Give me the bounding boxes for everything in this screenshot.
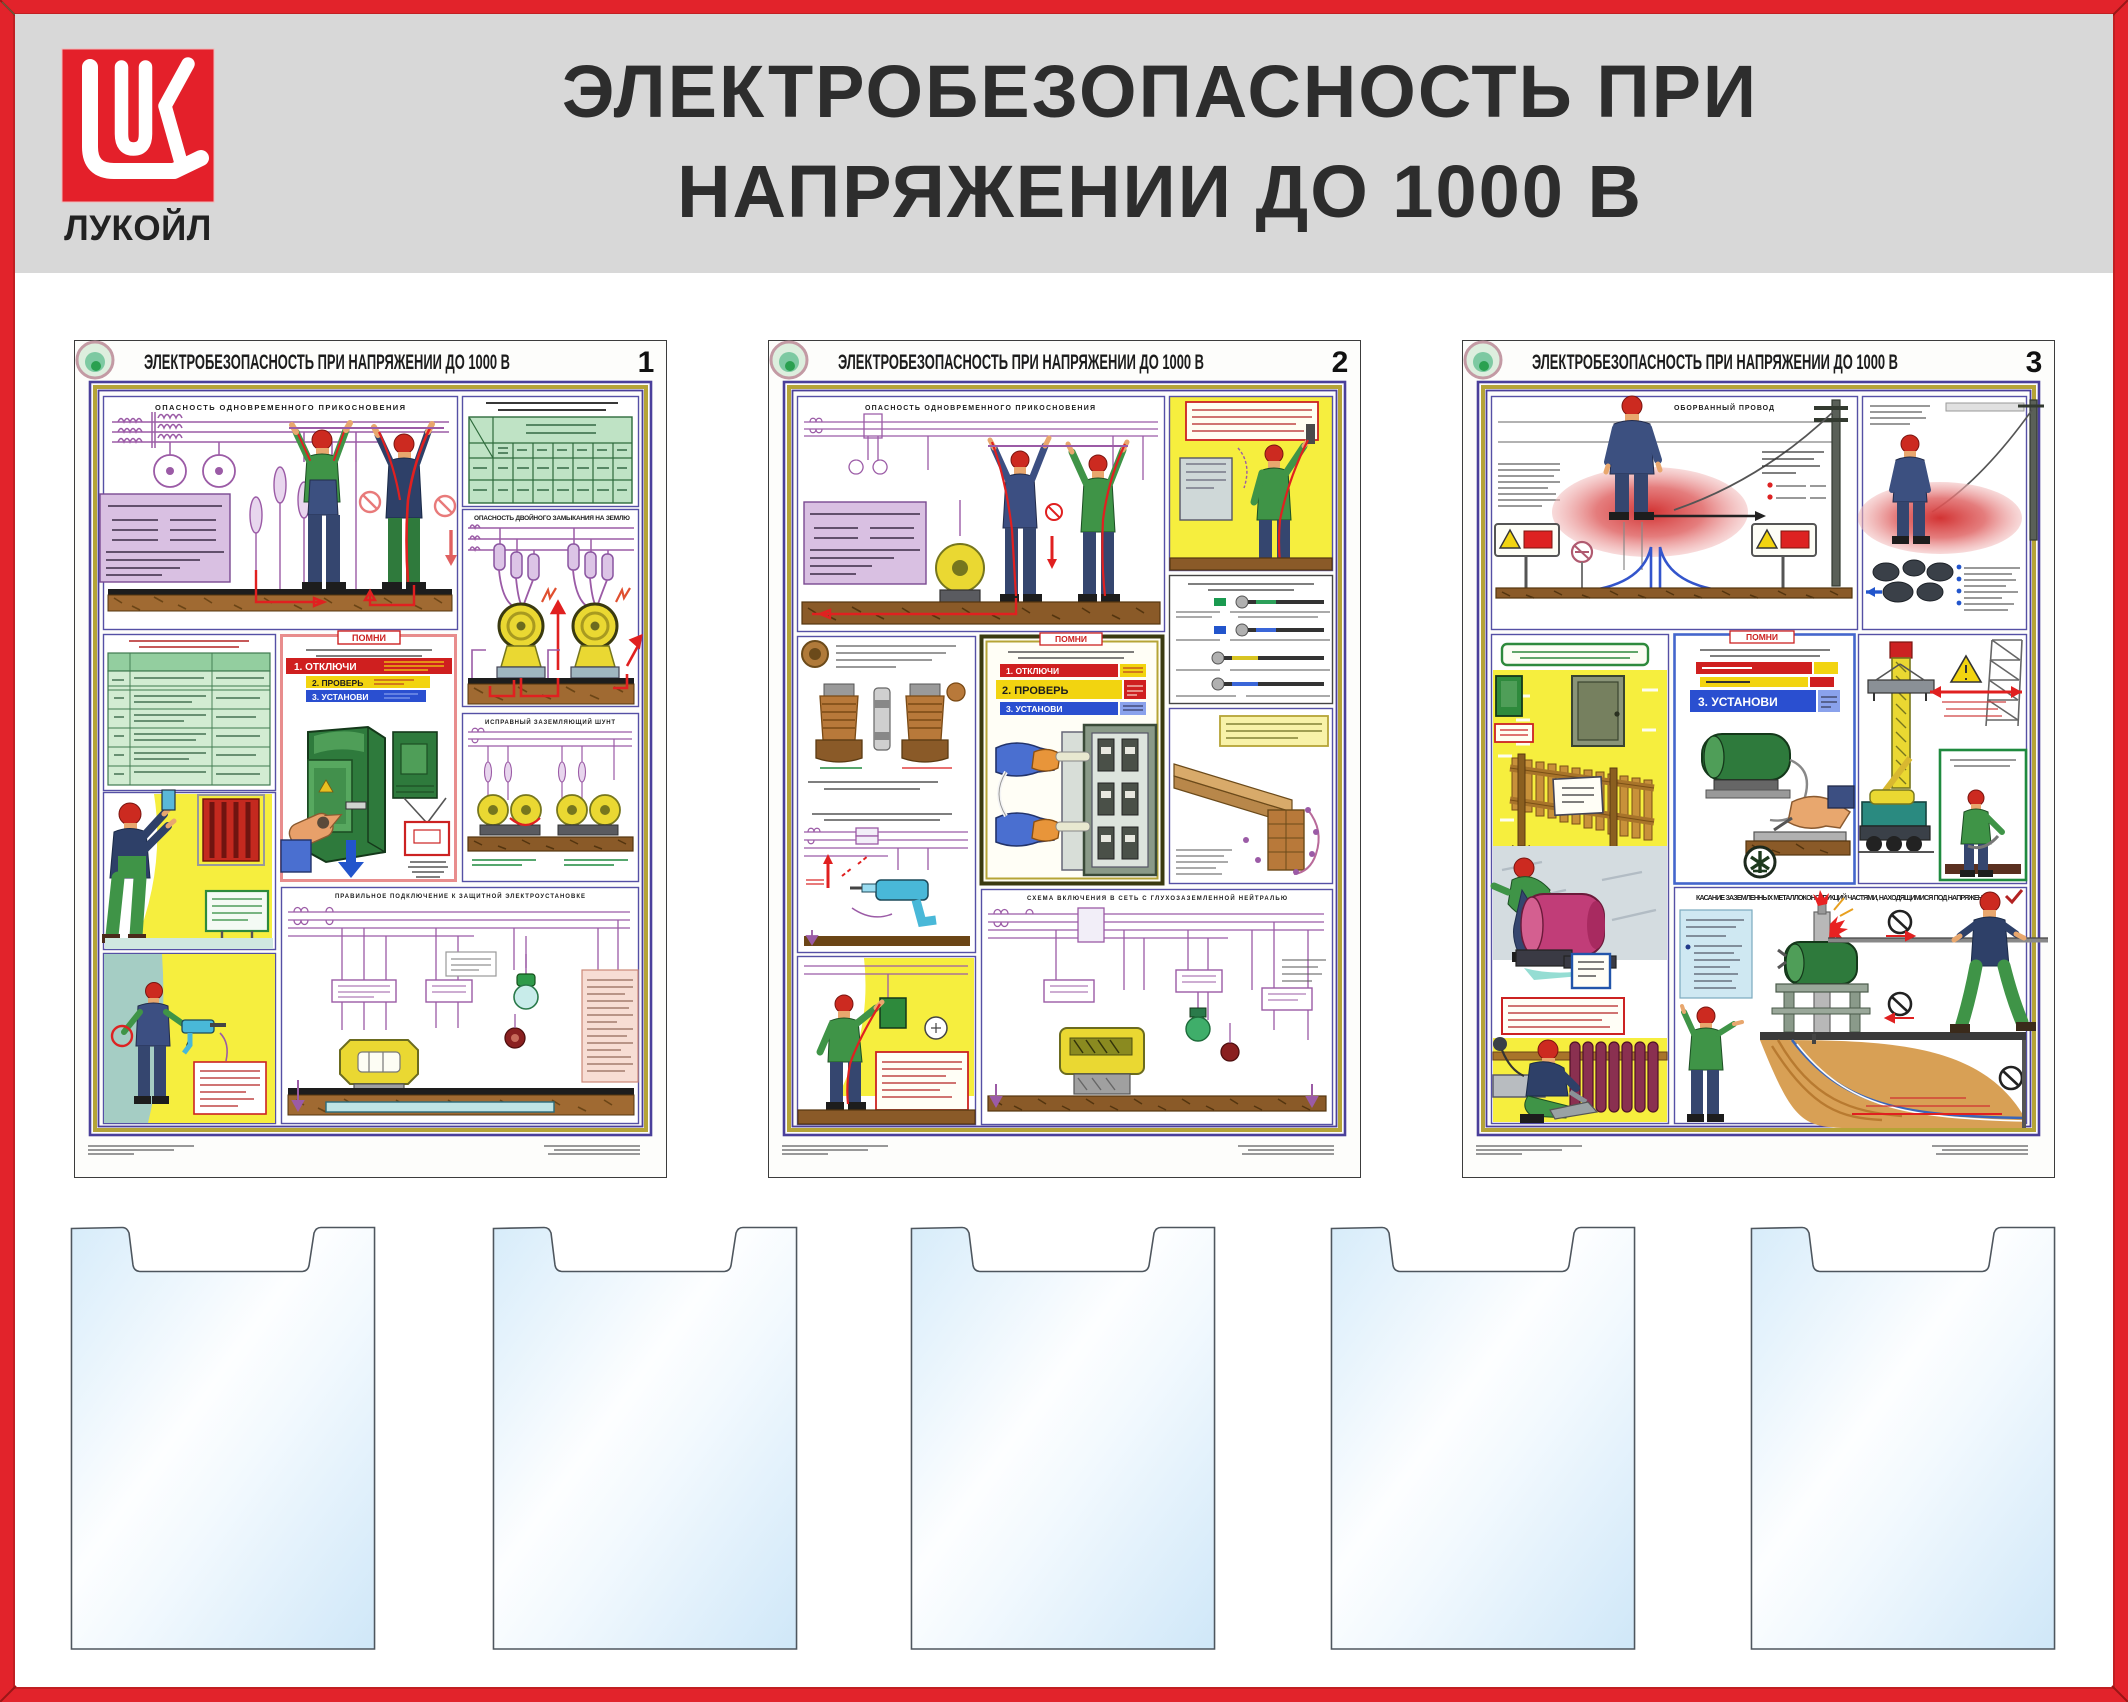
svg-text:ОПАСНОСТЬ ДВОЙНОГО ЗАМЫКАНИЯ Н: ОПАСНОСТЬ ДВОЙНОГО ЗАМЫКАНИЯ НА ЗЕМЛЮ [474,513,630,522]
svg-text:КАСАНИЕ ЗАЗЕМЛЕННЫХ МЕТАЛЛОКОН: КАСАНИЕ ЗАЗЕМЛЕННЫХ МЕТАЛЛОКОНСТРУКЦИЙ Ч… [1696,893,1996,902]
svg-text:1: 1 [638,346,655,379]
svg-text:2. ПРОВЕРЬ: 2. ПРОВЕРЬ [312,678,363,688]
svg-text:ПРАВИЛЬНОЕ ПОДКЛЮЧЕНИЕ К ЗАЩИТ: ПРАВИЛЬНОЕ ПОДКЛЮЧЕНИЕ К ЗАЩИТНОЙ ЭЛЕКТР… [335,892,585,900]
svg-text:ПОМНИ: ПОМНИ [1055,634,1087,644]
svg-text:3. УСТАНОВИ: 3. УСТАНОВИ [312,692,368,702]
svg-text:ЭЛЕКТРОБЕЗОПАСНОСТЬ ПРИ НАПРЯЖ: ЭЛЕКТРОБЕЗОПАСНОСТЬ ПРИ НАПРЯЖЕНИИ ДО 10… [838,351,1204,374]
svg-text:ИСПРАВНЫЙ ЗАЗЕМЛЯЮЩИЙ ШУНТ: ИСПРАВНЫЙ ЗАЗЕМЛЯЮЩИЙ ШУНТ [485,718,615,726]
svg-text:ЭЛЕКТРОБЕЗОПАСНОСТЬ ПРИ НАПРЯЖ: ЭЛЕКТРОБЕЗОПАСНОСТЬ ПРИ НАПРЯЖЕНИИ ДО 10… [1532,351,1898,374]
svg-text:3. УСТАНОВИ: 3. УСТАНОВИ [1006,704,1062,714]
svg-text:3: 3 [2026,346,2043,379]
svg-text:ОБОРВАННЫЙ ПРОВОД: ОБОРВАННЫЙ ПРОВОД [1674,403,1774,412]
svg-text:ЭЛЕКТРОБЕЗОПАСНОСТЬ ПРИ НАПРЯЖ: ЭЛЕКТРОБЕЗОПАСНОСТЬ ПРИ НАПРЯЖЕНИИ ДО 10… [144,351,510,374]
svg-text:2: 2 [1332,346,1349,379]
svg-text:СХЕМА ВКЛЮЧЕНИЯ В СЕТЬ С ГЛУХО: СХЕМА ВКЛЮЧЕНИЯ В СЕТЬ С ГЛУХОЗАЗЕМЛЕННО… [1027,894,1287,902]
svg-text:ПОМНИ: ПОМНИ [352,633,386,643]
svg-text:1. ОТКЛЮЧИ: 1. ОТКЛЮЧИ [294,662,357,673]
svg-text:ПОМНИ: ПОМНИ [1746,632,1778,642]
svg-text:3. УСТАНОВИ: 3. УСТАНОВИ [1698,695,1778,709]
svg-text:2. ПРОВЕРЬ: 2. ПРОВЕРЬ [1002,685,1069,697]
svg-text:1. ОТКЛЮЧИ: 1. ОТКЛЮЧИ [1006,666,1059,676]
